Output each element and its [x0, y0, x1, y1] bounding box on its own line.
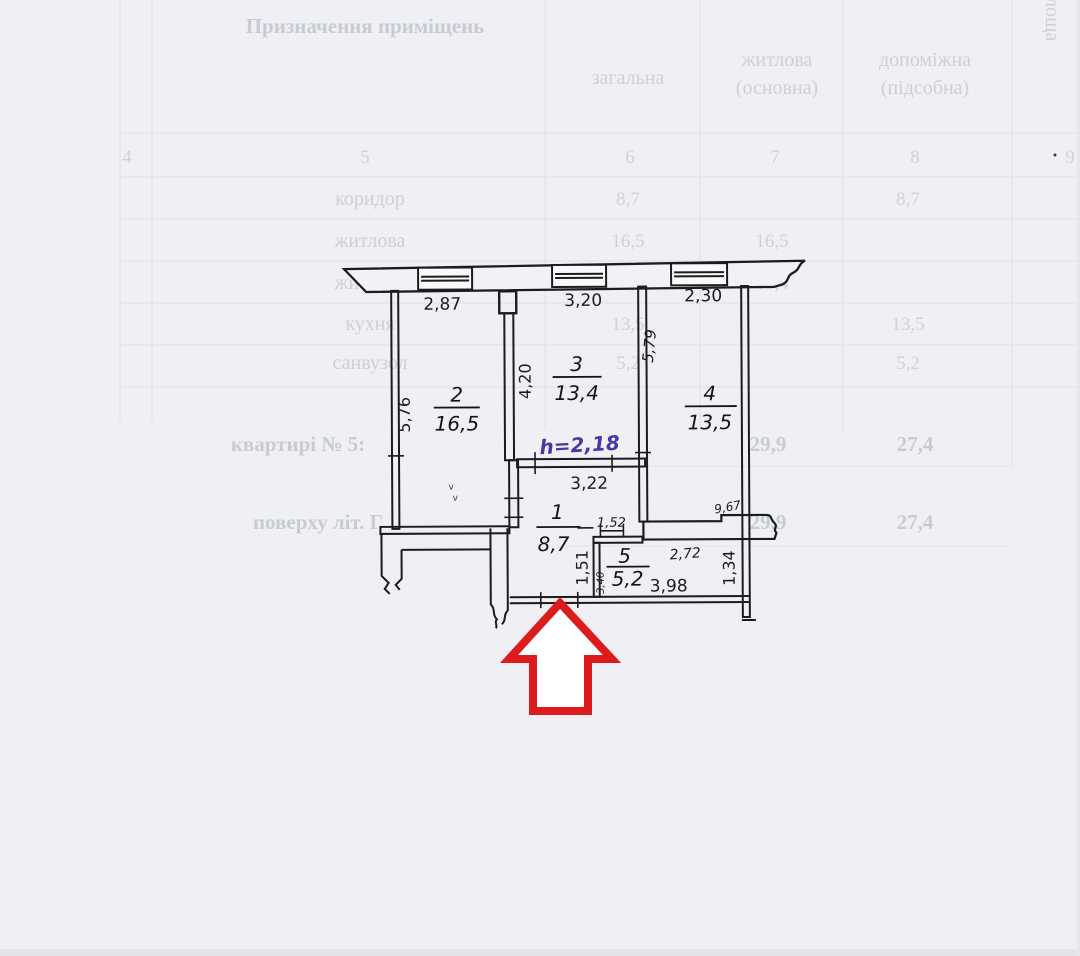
- dim-mid-wall: 3,22: [570, 474, 608, 494]
- ghost-summary-living-2: 29,9: [750, 510, 787, 534]
- room4-number: 4: [703, 381, 716, 405]
- dim-wall-step: 9,67: [713, 498, 742, 517]
- room2-number: 2: [450, 383, 463, 407]
- ghost-column-numbers: 4 5 6 7 8 9: [122, 147, 1075, 168]
- dim-strip-height: 1,34: [720, 550, 739, 586]
- scan-speck: [1054, 154, 1057, 157]
- ghost-col-header-aux-2: (підсобна): [881, 77, 969, 99]
- ghost-colnum-4: 4: [122, 147, 132, 168]
- dim-top-mid: 3,20: [564, 291, 602, 311]
- wall-hall-left-a: [490, 528, 497, 628]
- room3-area: 13,4: [554, 381, 599, 405]
- floor-plan-drawing: Призначення приміщень загальна житлова (…: [0, 0, 1080, 956]
- ghost-row-name: санвузол: [333, 352, 408, 374]
- ghost-col-header-side: Площа: [1041, 0, 1063, 41]
- room2-area: 16,5: [435, 411, 480, 435]
- wall-hall-left-b: [501, 528, 508, 624]
- dim-bottom: 3,98: [650, 576, 688, 596]
- ghost-summary-aux-1: 27,4: [897, 432, 934, 456]
- ghost-colnum-5: 5: [360, 147, 370, 168]
- page-bottom-edge: [0, 949, 1080, 956]
- room1-number: 1: [551, 500, 564, 524]
- ghost-colnum-7: 7: [770, 147, 780, 168]
- room1-area: 8,7: [538, 532, 570, 556]
- ghost-row-living: 16,5: [755, 231, 788, 252]
- ghost-row-name: кухня: [345, 313, 394, 335]
- dim-bath-side: 3,40: [596, 572, 607, 594]
- ghost-summary-label-2: поверху літ. Г: [253, 510, 383, 534]
- ghost-row-total: 16,5: [611, 231, 644, 252]
- dim-top-left: 2,87: [423, 295, 461, 315]
- ghost-row-total: 5,2: [616, 353, 640, 374]
- ghost-row-aux: 5,2: [896, 353, 920, 374]
- ghost-col-header-living-2: (основна): [736, 77, 818, 99]
- windows: [418, 263, 727, 290]
- stray-mark: v: [449, 483, 455, 493]
- stairwell-outer-edge: [381, 534, 389, 594]
- room3-number: 3: [570, 352, 583, 376]
- ghost-summary-aux-2: 27,4: [897, 510, 934, 534]
- ghost-row-aux: 8,7: [896, 189, 920, 210]
- dim-strip-width: 2,72: [669, 545, 701, 563]
- ghost-summary-living-1: 29,9: [750, 432, 787, 456]
- window-room2: [418, 267, 472, 289]
- wall-room3-hall: [517, 459, 645, 468]
- ghost-col-header-aux-1: допоміжна: [879, 49, 971, 71]
- ceiling-height-note: h=2,18: [539, 431, 621, 460]
- dim-room2-left: 5,76: [395, 397, 414, 433]
- ghost-table: Призначення приміщень загальна житлова (…: [0, 0, 1080, 868]
- dim-room4-wall: 5,79: [639, 328, 660, 363]
- dim-bath-top: 1,52: [597, 516, 626, 531]
- room5-area: 5,2: [612, 567, 644, 591]
- wall-right-exterior: [741, 286, 750, 617]
- wall-bottom-exterior: [510, 596, 749, 603]
- ghost-colnum-6: 6: [625, 147, 635, 168]
- ghost-col-header-living-1: житлова: [741, 49, 813, 71]
- ghost-row-name: житлова: [334, 230, 406, 252]
- stray-mark: v: [453, 494, 459, 504]
- dim-room3-left: 4,20: [516, 363, 535, 399]
- scanned-floor-plan-page: Призначення приміщень загальна житлова (…: [0, 0, 1080, 956]
- window-room3: [552, 265, 606, 287]
- ghost-row-total: 8,7: [616, 189, 640, 210]
- entrance-arrow-icon: [509, 603, 612, 711]
- ghost-summary-label-1: квартирі № 5:: [231, 432, 365, 456]
- ghost-col-header-purpose: Призначення приміщень: [246, 14, 485, 38]
- dim-hall-left: 1,51: [573, 550, 592, 586]
- room5-number: 5: [618, 544, 631, 568]
- window-room4: [671, 263, 727, 285]
- wall-pier-room3: [499, 291, 516, 313]
- ghost-col-header-total: загальна: [592, 67, 665, 89]
- ghost-row-name: коридор: [335, 188, 405, 210]
- stairwell-inner-edge: [396, 549, 491, 589]
- ghost-colnum-8: 8: [910, 147, 920, 168]
- ghost-row-total: 13,5: [611, 314, 644, 335]
- ghost-colnum-9: 9: [1065, 147, 1075, 168]
- dim-top-right: 2,30: [684, 286, 722, 306]
- floor-plan: 2,87 3,20 2,30 5,76 4,20 5,79 1,51 1,34 …: [344, 261, 807, 629]
- room4-area: 13,5: [688, 410, 733, 434]
- ghost-row-aux: 13,5: [891, 314, 924, 335]
